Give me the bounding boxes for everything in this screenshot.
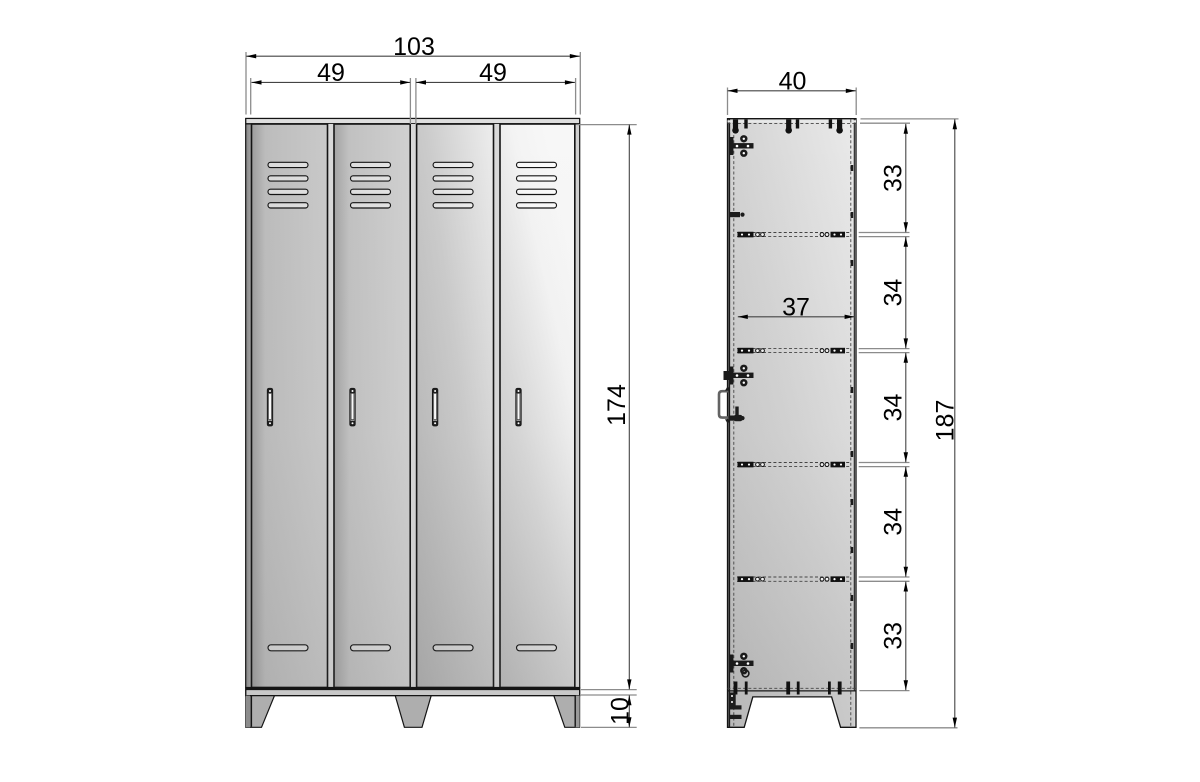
svg-text:49: 49 xyxy=(317,59,345,87)
svg-text:33: 33 xyxy=(880,164,908,192)
svg-text:34: 34 xyxy=(880,394,908,422)
svg-text:187: 187 xyxy=(932,400,960,442)
svg-text:33: 33 xyxy=(880,622,908,650)
svg-text:174: 174 xyxy=(603,384,631,426)
svg-text:37: 37 xyxy=(782,294,810,322)
svg-text:10: 10 xyxy=(607,697,635,725)
svg-text:40: 40 xyxy=(779,68,807,96)
svg-text:49: 49 xyxy=(479,59,507,87)
svg-text:34: 34 xyxy=(880,508,908,536)
svg-text:34: 34 xyxy=(880,279,908,307)
svg-text:103: 103 xyxy=(393,33,435,61)
